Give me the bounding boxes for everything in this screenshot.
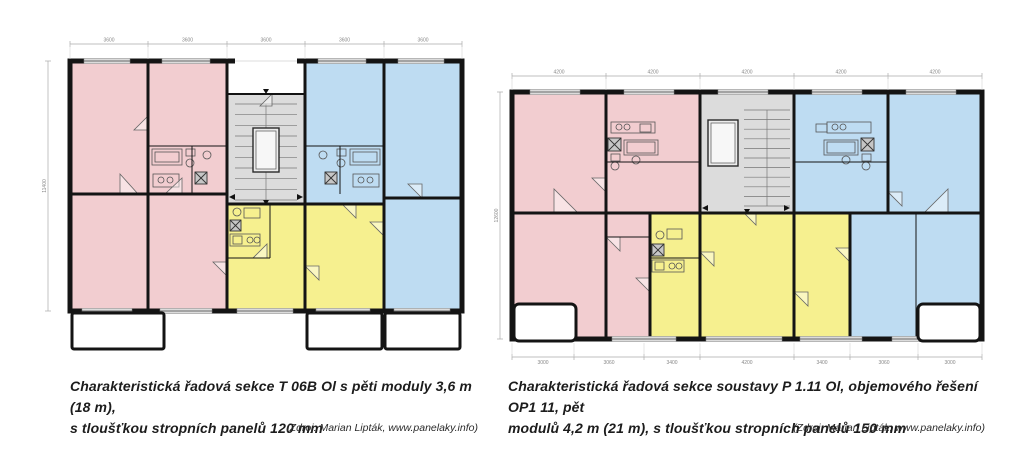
- svg-text:3000: 3000: [944, 360, 955, 366]
- svg-text:4200: 4200: [647, 70, 658, 76]
- source-credit-left: (Zdroj: Marian Lipták, www.panelaky.info…: [258, 422, 478, 434]
- source-credit-right: (Zdroj: Marian Lipták, www.panelaky.info…: [765, 422, 985, 434]
- svg-text:11400: 11400: [42, 179, 48, 193]
- svg-text:12600: 12600: [494, 208, 500, 222]
- floor-plan-t06b-svg: 3600360036003600360011400: [32, 26, 492, 356]
- caption-t06b-line1: Charakteristická řadová sekce T 06B Ol s…: [70, 376, 484, 418]
- page: 3600360036003600360011400 42004200420042…: [0, 0, 1024, 454]
- svg-text:4200: 4200: [929, 70, 940, 76]
- svg-text:3060: 3060: [603, 360, 614, 366]
- svg-text:3600: 3600: [182, 38, 193, 44]
- svg-text:4200: 4200: [741, 70, 752, 76]
- svg-text:3060: 3060: [878, 360, 889, 366]
- svg-text:3600: 3600: [103, 38, 114, 44]
- svg-text:3600: 3600: [260, 38, 271, 44]
- svg-text:3400: 3400: [816, 360, 827, 366]
- svg-text:3400: 3400: [666, 360, 677, 366]
- svg-text:3600: 3600: [417, 38, 428, 44]
- floor-plan-p111-svg: 4200420042004200420012600300030603400420…: [494, 62, 994, 374]
- svg-text:3600: 3600: [339, 38, 350, 44]
- floor-plan-t06b: 3600360036003600360011400: [32, 26, 492, 361]
- svg-text:4200: 4200: [553, 70, 564, 76]
- caption-p111-line1: Charakteristická řadová sekce soustavy P…: [508, 376, 986, 418]
- svg-text:4200: 4200: [835, 70, 846, 76]
- svg-text:3000: 3000: [537, 360, 548, 366]
- svg-text:4200: 4200: [741, 360, 752, 366]
- floor-plan-p111: 4200420042004200420012600300030603400420…: [494, 62, 994, 379]
